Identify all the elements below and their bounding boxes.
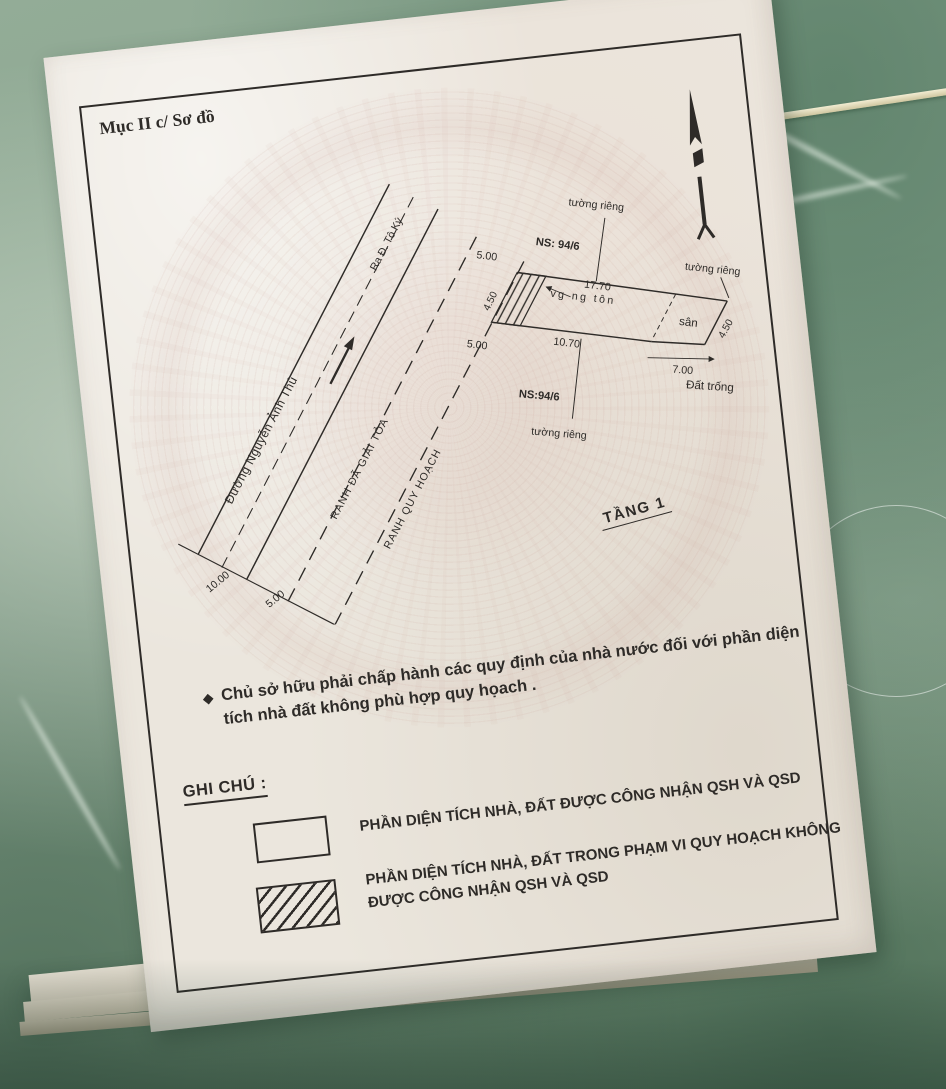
dim-yard-right-edge: 4.50 [717,317,736,340]
dim-cleared-strip: 5.00 [264,588,288,610]
legend-swatch-empty-rectangle [253,816,331,864]
photo-of-site-plan-document: Mục II c/ Sơ đồ [0,0,946,1089]
private-wall-label-right: tường riêng [684,261,741,278]
planning-boundary-label: RANH QUY HOẠCH [382,447,444,551]
legend-swatch-hatched-rectangle [256,879,341,934]
house-number-bottom: NS:94/6 [518,388,560,403]
regulation-note-text: Chủ sở hữu phải chấp hành các quy định c… [220,620,805,732]
regulation-note: ◆ Chủ sở hữu phải chấp hành các quy định… [201,620,805,734]
yard-label: sân [678,315,698,330]
site-plan-drawing: Đường Nguyễn Ảnh Thủ Ra Đ. Tô Ký RANH ĐÃ… [87,91,796,645]
cleared-boundary-label: RANH ĐÃ GIẢI TỎA [327,416,391,522]
floor-shadow-band [0,959,946,1089]
document-sheet: Mục II c/ Sơ đồ [43,0,876,1032]
empty-land-label: Đất trống [686,378,735,394]
direction-label: Ra Đ. Tô Ký [368,215,406,272]
house-number-top: NS: 94/6 [535,236,580,253]
diamond-bullet-icon: ◆ [202,687,218,734]
dim-front-bottom: 5.00 [466,338,488,352]
dim-road-width: 10.00 [204,569,232,595]
private-wall-label-top: tường riêng [568,196,625,213]
section-title: Mục II c/ Sơ đồ [98,106,215,140]
road-lines [142,179,483,646]
street-name-label: Đường Nguyễn Ảnh Thủ [221,373,300,506]
dim-yard-bottom: 7.00 [672,364,694,378]
dim-house-bottom: 10.70 [553,336,581,351]
private-wall-label-bottom: tường riêng [531,426,587,443]
marble-vein [17,695,122,871]
legend-title: GHI CHÚ : [182,774,268,806]
document-border-frame: Mục II c/ Sơ đồ [79,33,839,993]
dim-front-top: 5.00 [476,249,498,263]
legend-label-not-recognized: PHẦN DIỆN TÍCH NHÀ, ĐẤT TRONG PHẠM VI QU… [364,816,856,914]
